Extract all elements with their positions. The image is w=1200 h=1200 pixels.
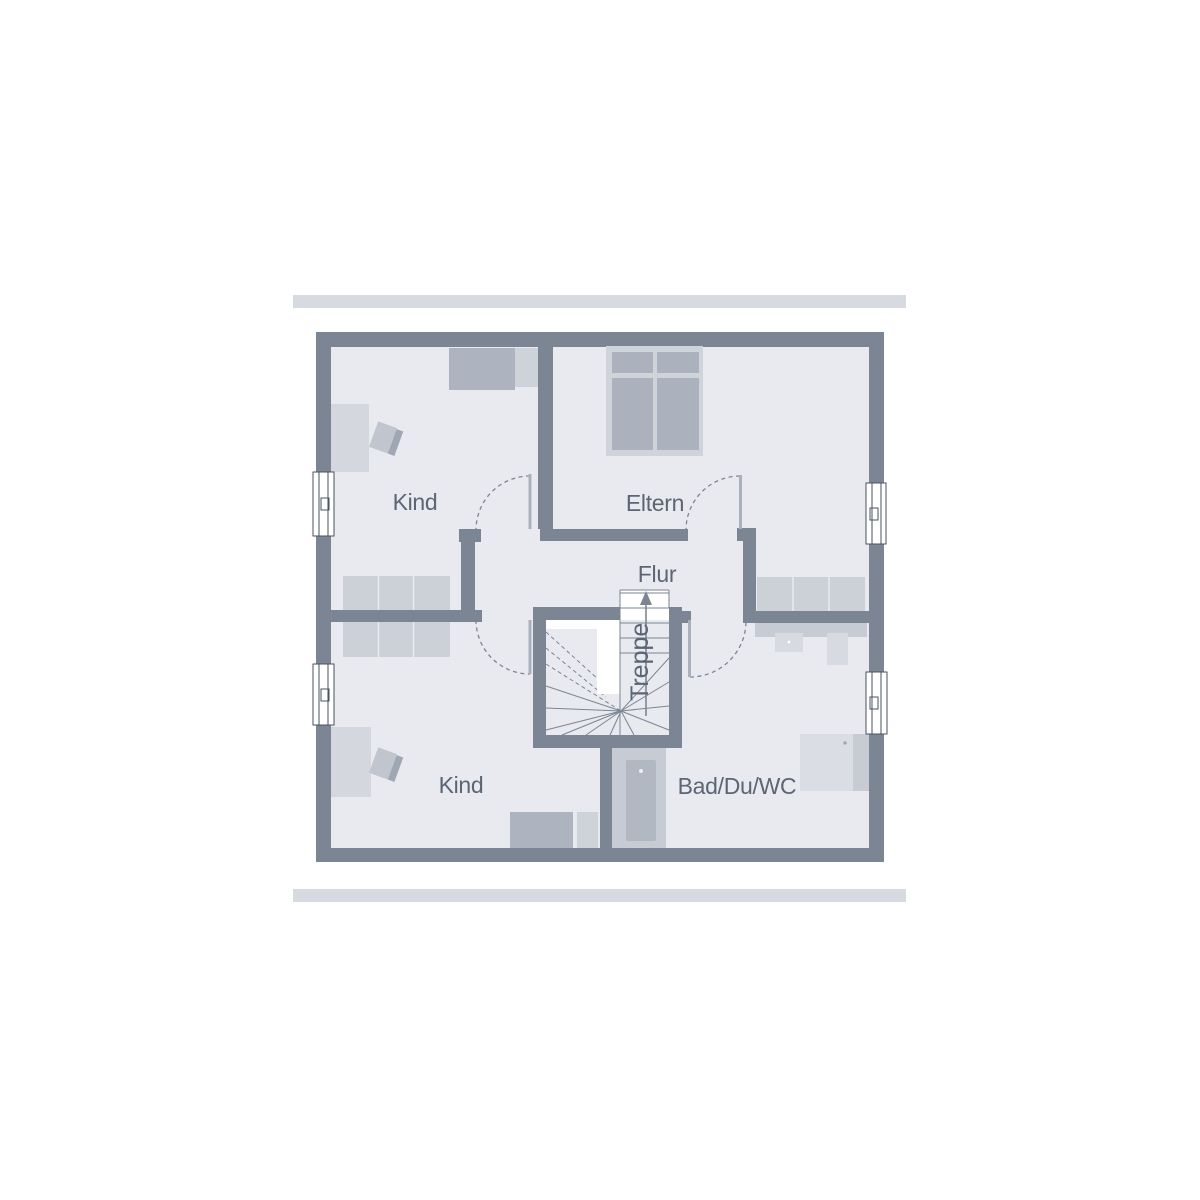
toilet (827, 633, 848, 665)
bathtub-drain (639, 769, 643, 773)
bed-kind-top (449, 348, 538, 390)
wall-eltern-door-post (737, 528, 756, 541)
stairwell-wall-right (669, 607, 682, 748)
bed-mattress-right (657, 378, 699, 450)
washbasin-drain (788, 641, 791, 644)
door-leaf-bad (688, 620, 691, 677)
vanity-counter (755, 623, 867, 637)
wall-kind-kind (331, 610, 482, 622)
door-leaf-eltern (739, 475, 742, 529)
bed-pillow-right (657, 352, 699, 373)
desk-kind-bottom (331, 727, 371, 797)
window-right-lower (866, 672, 887, 734)
bed-eltern (606, 346, 703, 456)
shower (800, 734, 869, 791)
floor-plan-drawing: Treppe Kind Eltern Flur Kind Bad/Du/WC (0, 0, 1200, 1200)
room-label-flur: Flur (638, 561, 677, 587)
window-left-upper (313, 472, 334, 536)
top-accent-bar (293, 295, 906, 308)
shower-drain (843, 741, 846, 744)
wall-kind-eltern (538, 347, 553, 529)
stair-label: Treppe (626, 623, 654, 701)
wall-kind-bad (600, 745, 612, 848)
bed-mattress-left (612, 378, 653, 450)
wall-eltern-flur (540, 529, 688, 541)
shower-wall-band (853, 734, 869, 791)
room-label-bad: Bad/Du/WC (678, 773, 797, 799)
window-left-lower (313, 664, 334, 725)
bed-mattress (449, 348, 515, 390)
stairwell-wall-top (533, 607, 620, 620)
bathtub (612, 748, 666, 848)
wardrobe-right (757, 577, 865, 612)
door-leaf-kind-bottom (529, 620, 532, 674)
bed-pillow (577, 812, 598, 848)
bed-kind-bottom (510, 812, 598, 848)
wall-kindtop-door-post (459, 529, 481, 542)
window-right-upper (866, 483, 886, 544)
stairwell-wall-left (533, 607, 546, 748)
bed-mattress (510, 812, 573, 848)
wall-flur-east (743, 541, 756, 615)
room-label-kind-bottom: Kind (439, 772, 484, 798)
floor-plan-page: Treppe Kind Eltern Flur Kind Bad/Du/WC (0, 0, 1200, 1200)
bed-pillow (515, 348, 538, 387)
room-label-eltern: Eltern (626, 490, 684, 516)
door-leaf-kind-top (529, 474, 532, 529)
room-label-kind-top: Kind (393, 489, 438, 515)
desk-kind-top (331, 404, 369, 472)
wall-bad-north (743, 611, 869, 623)
bottom-accent-bar (293, 889, 906, 902)
wall-flur-west (461, 542, 475, 610)
bed-pillow-left (612, 352, 653, 373)
